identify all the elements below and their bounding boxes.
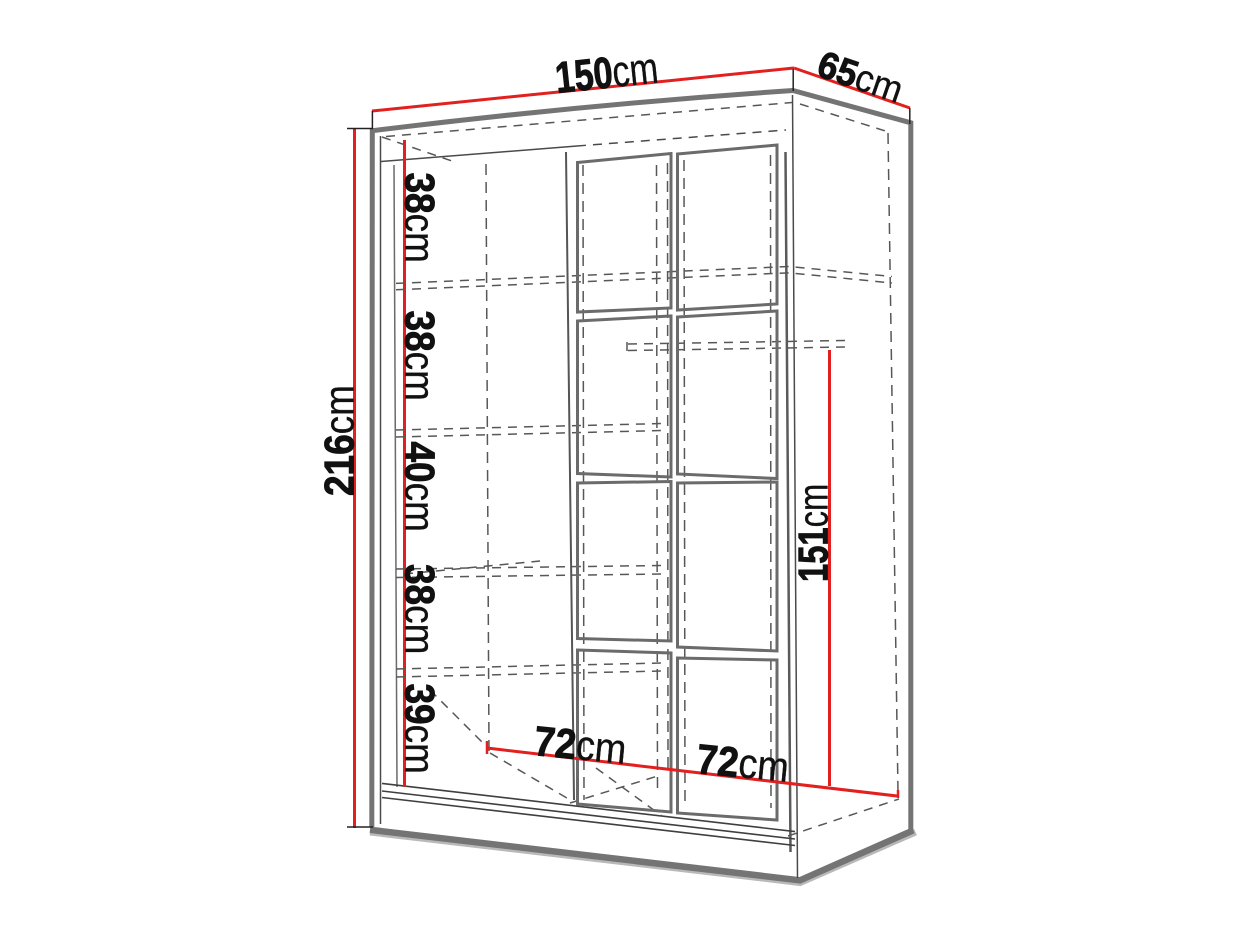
svg-text:40cm: 40cm bbox=[396, 442, 443, 532]
svg-text:39cm: 39cm bbox=[396, 684, 443, 774]
svg-text:216cm: 216cm bbox=[316, 385, 363, 496]
svg-text:38cm: 38cm bbox=[396, 173, 443, 263]
svg-text:38cm: 38cm bbox=[396, 564, 443, 654]
svg-text:151cm: 151cm bbox=[790, 484, 837, 582]
svg-text:38cm: 38cm bbox=[396, 311, 443, 401]
svg-text:72cm: 72cm bbox=[695, 736, 791, 791]
svg-text:72cm: 72cm bbox=[532, 718, 628, 773]
